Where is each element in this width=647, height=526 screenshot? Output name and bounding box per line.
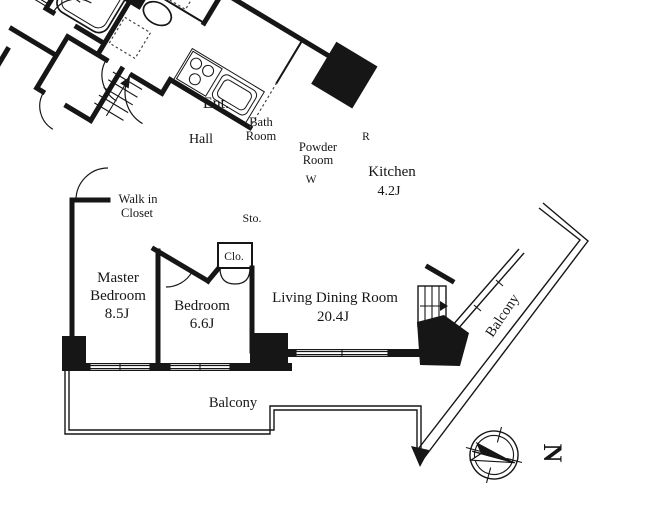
master-bedroom-area: 8.5J [105, 306, 130, 322]
closet-door-arc [220, 268, 235, 284]
walkin-closet-label: Walk in [119, 192, 159, 206]
washbasin [139, 0, 176, 30]
refrigerator-mark: R [362, 131, 370, 143]
bedroom-door-arc [166, 272, 192, 287]
pillar-block [250, 333, 288, 371]
master-hall-door-arc [76, 168, 108, 200]
stove-burner [189, 56, 204, 71]
ladder-direction-arrow [440, 301, 448, 311]
kitchen-area: 4.2J [378, 184, 402, 199]
north-compass [458, 419, 529, 490]
floor-plan-page: Shoes Clo. [0, 0, 647, 526]
corner-platform-block [417, 315, 469, 366]
living-door-arc [112, 74, 161, 123]
master-bedroom-label: Bedroom [90, 288, 146, 304]
storage-door-arc [30, 92, 67, 129]
closet-door-arc [235, 268, 250, 284]
walkin-closet-label: Closet [121, 206, 153, 220]
balcony-bottom-label: Balcony [209, 395, 258, 411]
north-label: N [538, 444, 567, 463]
washer-mark: W [306, 174, 317, 186]
powder-label: Powder [299, 140, 338, 154]
stove-burner [187, 72, 202, 87]
balcony-right-label: Balcony [483, 291, 524, 341]
floor-plan-canvas: Shoes Clo. [0, 0, 647, 526]
bedroom-label: Bedroom [174, 298, 230, 314]
kitchen-label: Kitchen [368, 164, 416, 180]
living-dining-area: 20.4J [317, 309, 349, 325]
entrance-label: Ent. [203, 95, 229, 112]
stove-burner [201, 63, 216, 78]
living-dining-label: Living Dining Room [272, 290, 398, 306]
pillar-block [62, 336, 86, 371]
master-bedroom-label: Master [97, 270, 139, 286]
hall-label: Hall [189, 132, 213, 147]
closet-label: Clo. [224, 251, 244, 263]
bath-label: Bath [249, 115, 273, 129]
storage-label: Sto. [242, 211, 261, 225]
bath-label: Room [246, 129, 277, 143]
balcony-corner-point [411, 446, 429, 467]
bedroom-area: 6.6J [190, 316, 215, 332]
entrance-step-line [0, 0, 49, 7]
balcony-rails [65, 203, 588, 467]
powder-label: Room [303, 153, 334, 167]
living-window [296, 349, 388, 357]
